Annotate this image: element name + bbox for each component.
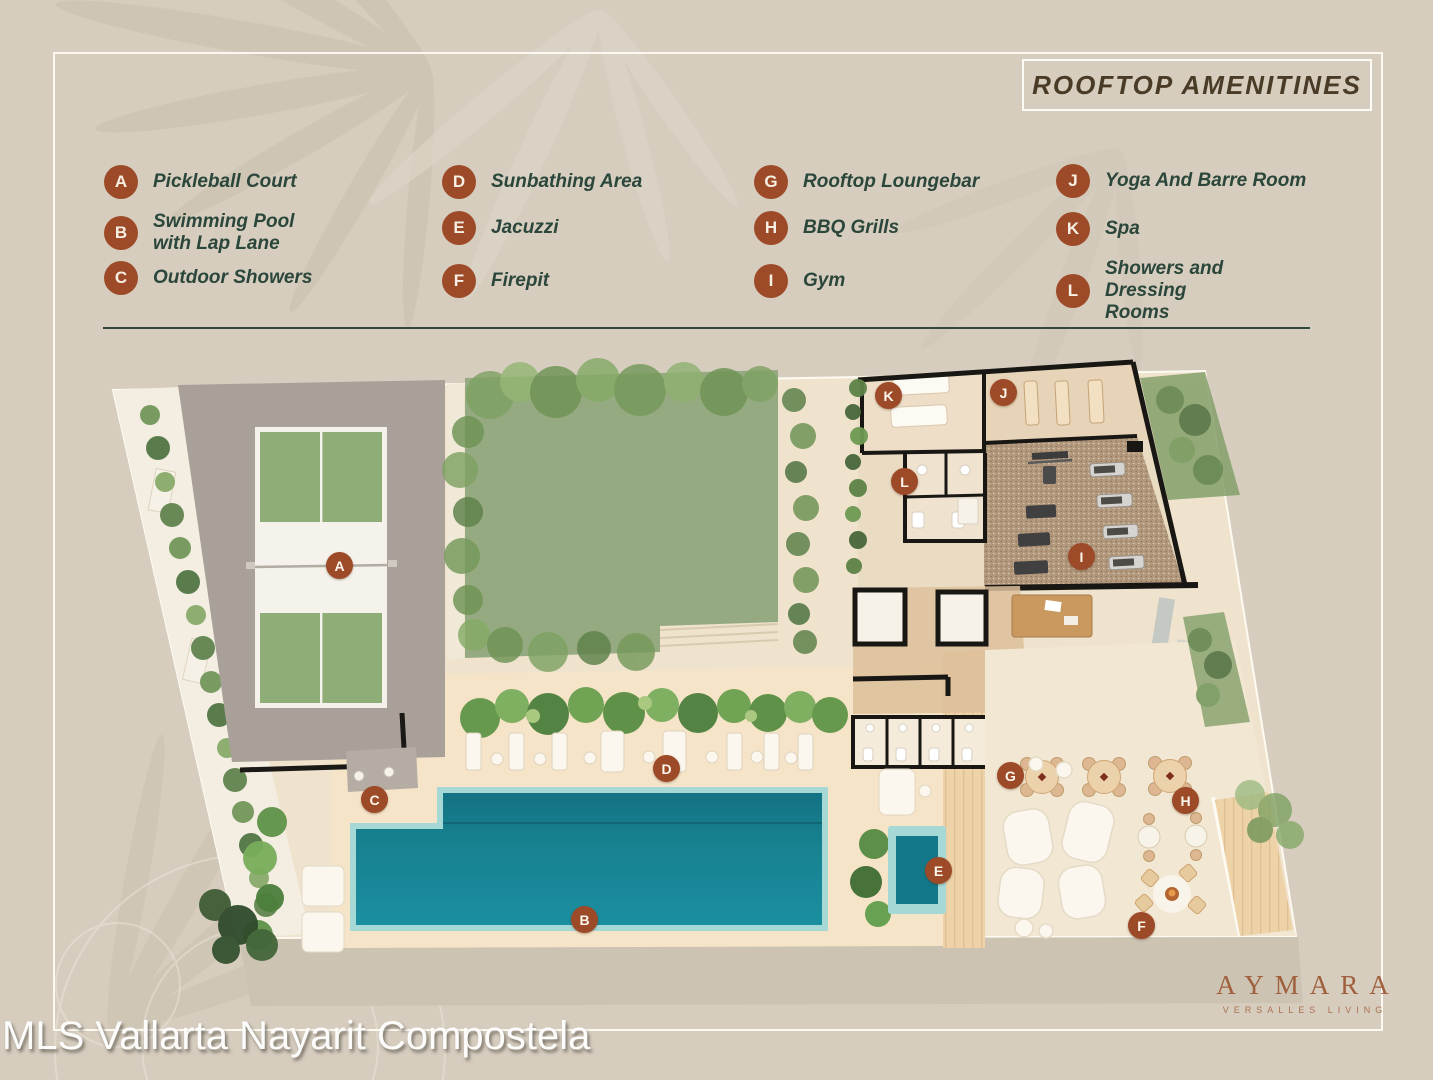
legend-label-e: Jacuzzi: [491, 217, 559, 239]
brand-logo: AYMARA VERSALLES LIVING: [1180, 970, 1425, 1015]
legend-badge-g: G: [754, 165, 788, 199]
legend-item-spa: K Spa: [1056, 212, 1140, 246]
legend-badge-e: E: [442, 211, 476, 245]
legend-label-l: Showers and Dressing Rooms: [1105, 258, 1255, 324]
page-title: ROOFTOP AMENITINES: [1032, 70, 1362, 101]
legend-badge-f: F: [442, 264, 476, 298]
legend-item-jacuzzi: E Jacuzzi: [442, 211, 559, 245]
legend-label-k: Spa: [1105, 218, 1140, 240]
outdoor-showers: [346, 747, 418, 792]
legend-badge-l: L: [1056, 274, 1090, 308]
legend-item-gym: I Gym: [754, 264, 845, 298]
legend-label-f: Firepit: [491, 270, 549, 292]
legend-label-h: BBQ Grills: [803, 217, 899, 239]
legend-label-j: Yoga And Barre Room: [1105, 170, 1320, 192]
plan-marker-l: L: [891, 468, 918, 495]
legend-item-sunbathing: D Sunbathing Area: [442, 165, 642, 199]
dining-tables: [1021, 757, 1192, 797]
plan-marker-c: C: [361, 786, 388, 813]
title-box: ROOFTOP AMENITINES: [1022, 59, 1372, 111]
plan-marker-e: E: [925, 857, 952, 884]
brand-tagline: VERSALLES LIVING: [1180, 1005, 1430, 1015]
legend-badge-d: D: [442, 165, 476, 199]
legend-item-showers: C Outdoor Showers: [104, 261, 312, 295]
plan-marker-k: K: [875, 382, 902, 409]
legend-label-g: Rooftop Loungebar: [803, 171, 979, 193]
watermark: MLS Vallarta Nayarit Compostela: [2, 1014, 590, 1059]
brochure-page: ROOFTOP AMENITINES A Pickleball Court B …: [0, 0, 1433, 1080]
legend-label-a: Pickleball Court: [153, 171, 297, 193]
legend-item-dressing: L Showers and Dressing Rooms: [1056, 258, 1255, 324]
legend-divider: [103, 327, 1310, 329]
legend-item-pool: B Swimming Pool with Lap Lane: [104, 211, 303, 255]
legend-item-pickleball: A Pickleball Court: [104, 165, 297, 199]
plan-marker-a: A: [326, 552, 353, 579]
legend-badge-k: K: [1056, 212, 1090, 246]
legend-item-firepit: F Firepit: [442, 264, 549, 298]
legend-badge-c: C: [104, 261, 138, 295]
legend-label-c: Outdoor Showers: [153, 267, 312, 289]
pickleball-court: [246, 427, 397, 708]
legend-label-i: Gym: [803, 270, 845, 292]
legend-item-loungebar: G Rooftop Loungebar: [754, 165, 979, 199]
brand-name: AYMARA: [1180, 970, 1433, 1001]
plan-marker-f: F: [1128, 912, 1155, 939]
plan-marker-j: J: [990, 379, 1017, 406]
legend-badge-j: J: [1056, 164, 1090, 198]
garden: [442, 358, 819, 672]
floorplan-render: [0, 0, 1433, 1080]
legend-badge-b: B: [104, 216, 138, 250]
legend-item-yoga: J Yoga And Barre Room: [1056, 164, 1320, 198]
legend-item-bbq: H BBQ Grills: [754, 211, 899, 245]
legend-label-d: Sunbathing Area: [491, 171, 642, 193]
plan-marker-i: I: [1068, 543, 1095, 570]
plan-marker-b: B: [571, 906, 598, 933]
legend-badge-h: H: [754, 211, 788, 245]
legend-badge-a: A: [104, 165, 138, 199]
plan-marker-h: H: [1172, 787, 1199, 814]
legend-label-b: Swimming Pool with Lap Lane: [153, 211, 303, 255]
legend-badge-i: I: [754, 264, 788, 298]
plan-marker-g: G: [997, 762, 1024, 789]
plan-marker-d: D: [653, 755, 680, 782]
